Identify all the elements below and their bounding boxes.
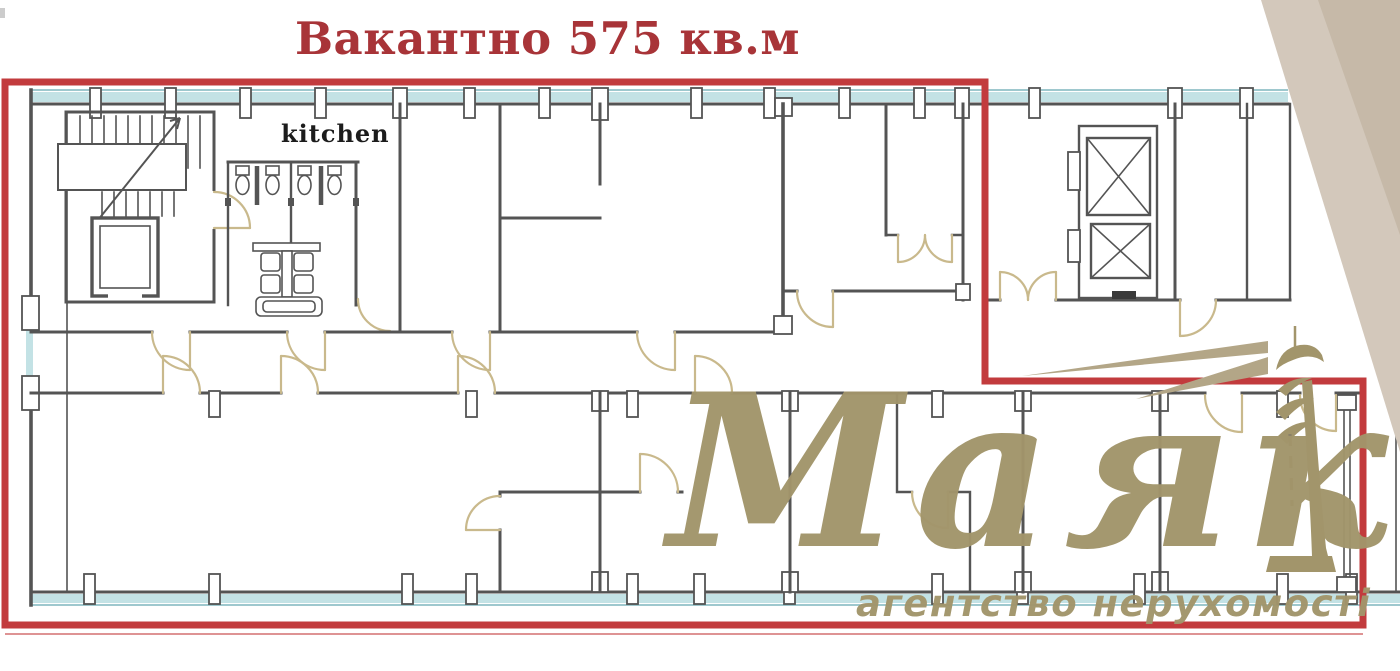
kitchen-label: kitchen: [281, 119, 390, 148]
table-and-chairs: [253, 243, 320, 297]
watermark-brand: Маяк: [668, 366, 1400, 578]
vacancy-title: Вакантно 575 кв.м: [295, 12, 800, 65]
corner-smudge: [0, 8, 5, 18]
sink-unit: [256, 297, 322, 316]
elevator-door-mark: [1112, 291, 1136, 299]
floorplan-page: Вакантно 575 кв.м kitchen Маяк агентство…: [0, 0, 1400, 671]
watermark-tagline: агентство нерухомості: [856, 582, 1371, 625]
